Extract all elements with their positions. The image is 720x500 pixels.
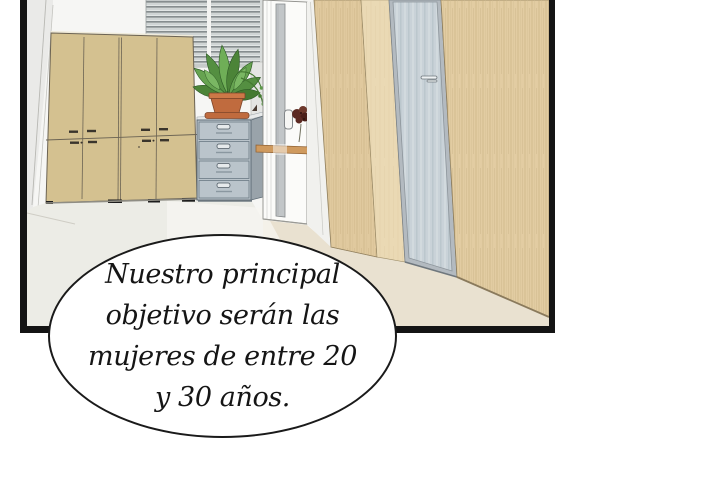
storage-cabinet [46, 31, 197, 204]
door-handle [285, 110, 293, 129]
speech-bubble: Nuestro principal objetivo serán las muj… [48, 234, 397, 438]
speech-line: mujeres de entre 20 [88, 336, 357, 377]
comic-page: Nuestro principal objetivo serán las muj… [0, 0, 720, 500]
speech-line: y 30 años. [88, 377, 357, 418]
speech-text: Nuestro principal objetivo serán las muj… [88, 254, 357, 418]
door-glass-slit [276, 4, 285, 217]
speech-line: Nuestro principal [88, 254, 357, 295]
speech-line: objetivo serán las [88, 295, 357, 336]
filing-cabinet [197, 112, 263, 202]
wood-panel-right [441, 0, 549, 317]
